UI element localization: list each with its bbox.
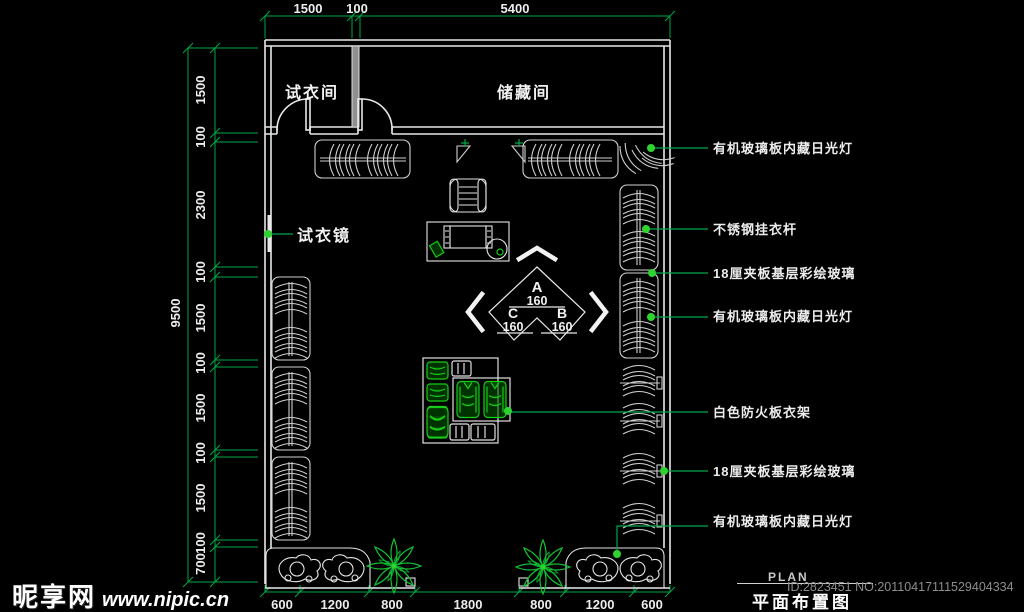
- dim-bottom-2: 800: [381, 597, 403, 612]
- dim-left-6: 1500: [193, 394, 208, 423]
- marker-letter-c: C: [508, 305, 518, 321]
- callout-painted-glass-2: 18厘夹板基层彩绘玻璃: [713, 464, 855, 479]
- dim-top-1: 100: [346, 1, 368, 16]
- callout-painted-glass-1: 18厘夹板基层彩绘玻璃: [713, 266, 855, 281]
- right-wall-racks: [620, 185, 662, 534]
- callout-acrylic-light-3: 有机玻璃板内藏日光灯: [713, 514, 853, 529]
- top-wall-racks: [315, 140, 675, 178]
- dim-top-2: 5400: [501, 1, 530, 16]
- fitting-room-label: 试衣间: [285, 83, 339, 102]
- dim-bottom-4: 800: [530, 597, 552, 612]
- watermark-brand: 昵享网: [12, 582, 96, 612]
- storage-room-label: 储藏间: [496, 83, 551, 102]
- left-wall-racks: [272, 277, 310, 540]
- doors: [277, 99, 392, 130]
- dim-left-4: 1500: [193, 304, 208, 333]
- callout-acrylic-light-1: 有机玻璃板内藏日光灯: [713, 141, 853, 156]
- dim-left-3: 100: [193, 261, 208, 283]
- dim-bottom-0: 600: [271, 597, 293, 612]
- callout-steel-rail: 不锈钢挂衣杆: [713, 222, 797, 237]
- dim-left-5: 100: [193, 352, 208, 374]
- dim-left-total: 9500: [168, 299, 183, 328]
- watermark: 昵享网www.nipic.cn: [12, 577, 229, 612]
- fitting-mirror-label: 试衣镜: [297, 226, 351, 245]
- armchair: [450, 179, 486, 212]
- sofa-and-table: [427, 222, 509, 261]
- watermark-site: www.nipic.cn: [102, 589, 229, 611]
- dim-left-8: 1500: [193, 484, 208, 513]
- dim-bottom-5: 1200: [586, 597, 615, 612]
- dim-bottom-3: 1800: [454, 597, 483, 612]
- dim-left-0: 1500: [193, 76, 208, 105]
- marker-value-b: 160: [552, 320, 573, 334]
- dim-top-0: 1500: [294, 1, 323, 16]
- floor-plan-drawing: A 160 C B 160 160 有机玻璃板内藏日光灯 不锈钢挂衣杆 18厘夹…: [0, 0, 1024, 612]
- dim-bottom-1: 1200: [321, 597, 350, 612]
- elevation-marker: A 160 C B 160 160: [468, 248, 606, 340]
- dim-bottom-6: 600: [641, 597, 663, 612]
- marker-value-a: 160: [527, 294, 548, 308]
- dim-left-7: 100: [193, 442, 208, 464]
- dim-left-10: 700: [193, 553, 208, 575]
- dim-left-9: 100: [193, 532, 208, 554]
- plan-title-cn: 平面布置图: [752, 588, 852, 612]
- dim-left-1: 100: [193, 126, 208, 148]
- center-clothes-fixture: [423, 358, 510, 443]
- callout-white-rack: 白色防火板衣架: [713, 405, 811, 420]
- callout-labels: 有机玻璃板内藏日光灯 不锈钢挂衣杆 18厘夹板基层彩绘玻璃 有机玻璃板内藏日光灯…: [713, 141, 855, 529]
- dim-left-2: 2300: [193, 191, 208, 220]
- display-windows: [266, 548, 664, 588]
- cad-floor-plan-image: A 160 C B 160 160 有机玻璃板内藏日光灯 不锈钢挂衣杆 18厘夹…: [0, 0, 1024, 612]
- plant-left: [367, 539, 421, 593]
- marker-letter-b: B: [557, 305, 567, 321]
- marker-value-c: 160: [503, 320, 524, 334]
- dimension-labels: 1500 100 5400 600 1200 800 1800 800 1200…: [168, 1, 663, 612]
- plant-right: [516, 540, 570, 594]
- callout-acrylic-light-2: 有机玻璃板内藏日光灯: [713, 309, 853, 324]
- bottom-dimension-lines: [260, 585, 675, 597]
